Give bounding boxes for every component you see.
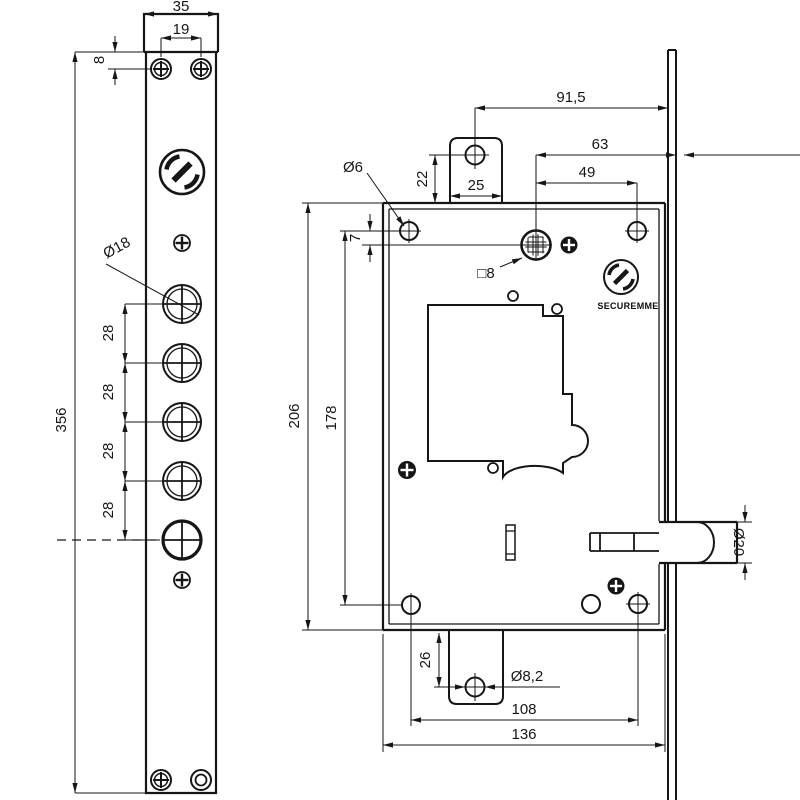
deadbolt-tail [590, 533, 659, 551]
cylinder-hole-4 [163, 462, 201, 500]
mechanism-cutout [428, 305, 588, 477]
faceplate-screw-upper [174, 235, 190, 251]
phillips-screw-left-edge [398, 461, 416, 479]
faceplate-edge-view [668, 50, 676, 800]
bottom-ring-hole [191, 770, 211, 790]
dim-bolt-diameter: Ø20 [730, 528, 747, 556]
body-dimensions: 91,5 63 49 25 22 Ø6 7 □8 [286, 89, 800, 752]
dim-cylinder-top-offset: 7 [347, 234, 364, 242]
dim-cylinder-to-faceplate: 63 [592, 136, 609, 153]
body-screw-top-right [625, 183, 649, 243]
dim-body-width: 136 [511, 726, 536, 743]
dim-screw-spacing: 19 [173, 21, 190, 38]
dim-bottom-tab-hole-diameter: Ø8,2 [511, 668, 544, 685]
securemme-logo-icon [160, 150, 204, 194]
spindle-pin [506, 525, 515, 560]
bottom-screw [151, 770, 171, 790]
dim-hole-pitch-1: 28 [100, 325, 117, 342]
dim-screw-to-cylinder: 49 [579, 164, 596, 181]
dim-hole-pitch-3: 28 [100, 443, 117, 460]
dim-screw-hole-diameter: Ø6 [343, 159, 363, 176]
lock-technical-drawing: 35 19 8 356 Ø18 28 28 28 [0, 0, 800, 800]
faceplate-front-view: 35 19 8 356 Ø18 28 28 28 [53, 0, 218, 793]
cylinder-hole-2 [163, 344, 201, 382]
pin-hole-corner [552, 304, 562, 314]
dim-bottom-tab-hole-offset: 26 [417, 652, 434, 669]
top-screw-left [151, 59, 171, 79]
top-screw-right [191, 59, 211, 79]
dim-hole-pitch-4: 28 [100, 502, 117, 519]
faceplate-screw-lower [174, 572, 190, 588]
technical-drawing-page: 35 19 8 356 Ø18 28 28 28 [0, 0, 800, 800]
dim-cylinder-hole-diameter: Ø18 [100, 234, 133, 263]
securemme-logo-icon-body [604, 260, 638, 294]
dim-tab-hole-offset: 22 [414, 171, 431, 188]
deadbolt [659, 522, 737, 563]
body-screw-bottom-right [626, 592, 650, 726]
dim-body-height: 206 [286, 403, 303, 428]
dim-screw-offset: 8 [91, 56, 108, 64]
dim-faceplate-length: 356 [53, 407, 70, 432]
pin-hole-lower [488, 463, 498, 473]
cylinder-hole-1 [163, 285, 201, 323]
phillips-screw-bottom [608, 578, 625, 595]
dim-screw-span-horizontal: 108 [511, 701, 536, 718]
cylinder-hole-5 [163, 521, 201, 559]
round-hole-bottom [582, 595, 600, 613]
dim-hole-pitch-2: 28 [100, 384, 117, 401]
brand-wordmark: SECUREMME [597, 301, 658, 311]
lock-body-view: SECUREMME 91,5 63 49 25 22 Ø6 [286, 50, 800, 800]
dim-spindle-square: □8 [477, 265, 494, 282]
pin-hole-top [508, 291, 518, 301]
dim-screw-span-vertical: 178 [323, 405, 340, 430]
dim-tab-width: 25 [468, 177, 485, 194]
lock-body-case [383, 203, 665, 630]
phillips-screw-near-cylinder [561, 237, 578, 254]
bottom-mounting-tab [449, 631, 503, 704]
faceplate-dimensions: 35 19 8 356 Ø18 28 28 28 [53, 0, 218, 793]
dim-faceplate-width: 35 [173, 0, 190, 15]
dim-tab-to-faceplate: 91,5 [556, 89, 585, 106]
cylinder-hole-3 [163, 403, 201, 441]
